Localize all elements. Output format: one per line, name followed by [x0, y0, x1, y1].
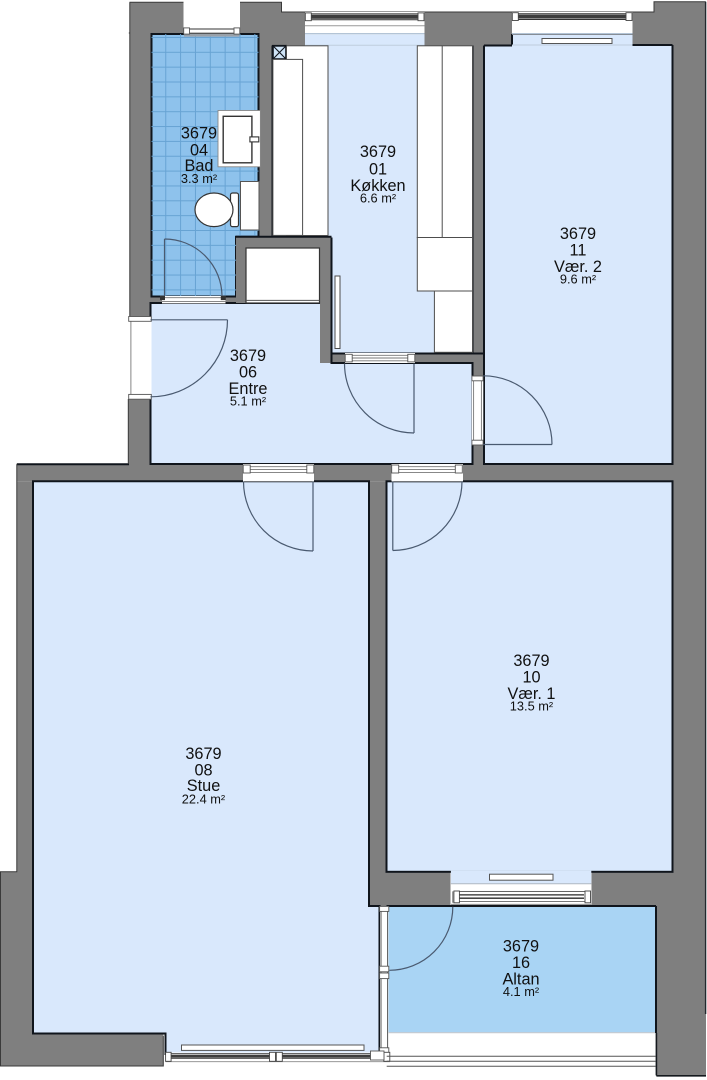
svg-text:3679: 3679 — [185, 745, 221, 763]
svg-text:3.3 m²: 3.3 m² — [181, 171, 218, 186]
svg-text:5.1 m²: 5.1 m² — [230, 394, 267, 409]
svg-text:4.1 m²: 4.1 m² — [503, 984, 540, 999]
svg-text:16: 16 — [512, 954, 530, 972]
svg-text:01: 01 — [369, 161, 387, 179]
svg-text:3679: 3679 — [230, 347, 266, 365]
svg-text:3679: 3679 — [181, 125, 217, 143]
svg-text:10: 10 — [522, 669, 540, 687]
svg-text:6.6 m²: 6.6 m² — [360, 191, 397, 206]
svg-text:3679: 3679 — [503, 937, 539, 955]
svg-text:3679: 3679 — [560, 225, 596, 243]
svg-text:13.5 m²: 13.5 m² — [510, 699, 554, 714]
svg-text:22.4 m²: 22.4 m² — [182, 792, 226, 807]
svg-text:3679: 3679 — [513, 652, 549, 670]
svg-text:9.6 m²: 9.6 m² — [560, 272, 597, 287]
svg-text:3679: 3679 — [360, 143, 396, 161]
svg-text:11: 11 — [570, 242, 587, 260]
svg-text:06: 06 — [239, 364, 257, 382]
